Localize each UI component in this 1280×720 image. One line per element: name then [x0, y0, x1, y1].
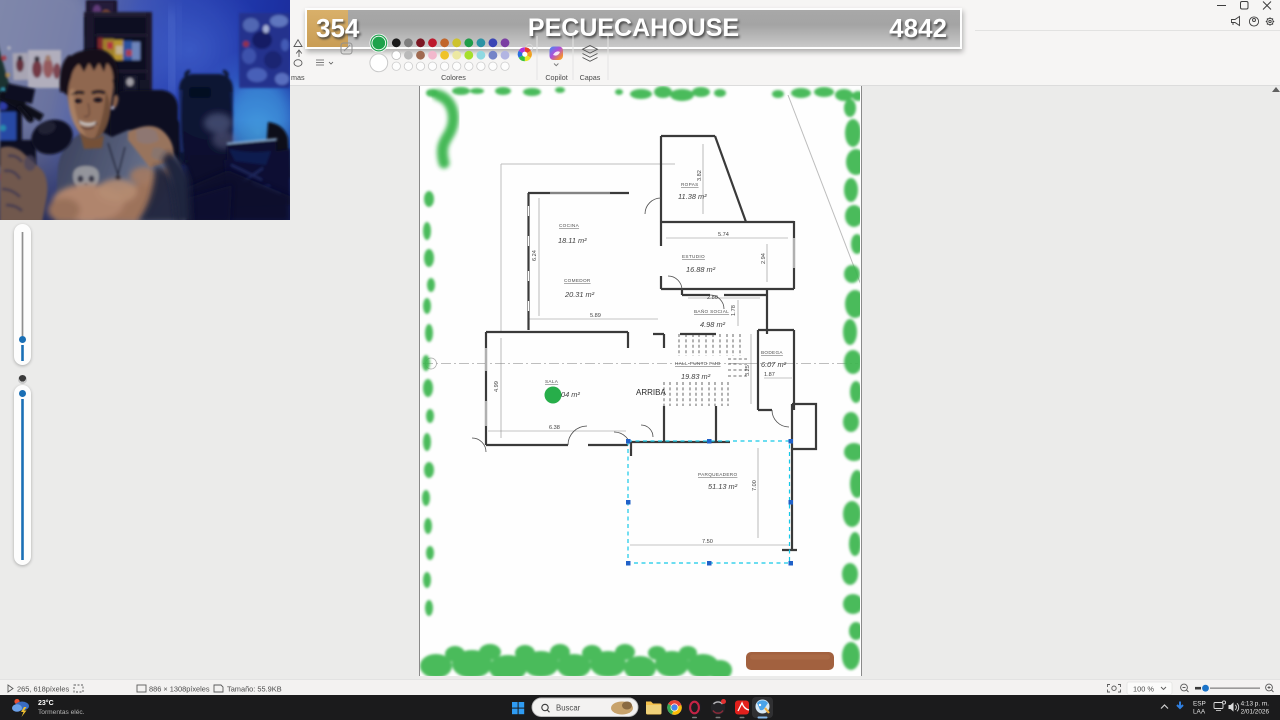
svg-text:Tamaño: 55.9KB: Tamaño: 55.9KB — [227, 685, 282, 694]
svg-text:5.74: 5.74 — [718, 232, 729, 238]
svg-text:2/01/2026: 2/01/2026 — [1241, 709, 1270, 716]
svg-text:100 %: 100 % — [1133, 685, 1154, 694]
svg-text:ARRIBA: ARRIBA — [636, 388, 666, 397]
svg-text:Tormentas eléc.: Tormentas eléc. — [38, 709, 85, 716]
svg-text:23°C: 23°C — [38, 699, 54, 707]
svg-text:ESTUDIO: ESTUDIO — [682, 254, 705, 259]
svg-text:COCINA: COCINA — [559, 223, 580, 228]
svg-text:19.83 m²: 19.83 m² — [681, 372, 711, 381]
svg-text:20.31 m²: 20.31 m² — [564, 290, 595, 299]
svg-text:2.94: 2.94 — [761, 253, 767, 264]
svg-text:6.07 m²: 6.07 m² — [761, 360, 787, 369]
svg-text:ESP: ESP — [1193, 701, 1206, 708]
svg-text:5.89: 5.89 — [590, 313, 601, 319]
svg-text:51.13 m²: 51.13 m² — [708, 482, 738, 491]
svg-text:1.87: 1.87 — [764, 372, 775, 378]
svg-text:3.25: 3.25 — [745, 365, 751, 376]
svg-text:COMEDOR: COMEDOR — [564, 278, 591, 283]
svg-text:Buscar: Buscar — [556, 704, 581, 713]
svg-text:3.82: 3.82 — [697, 170, 703, 181]
svg-text:6.24: 6.24 — [532, 250, 538, 261]
svg-text:SALA: SALA — [545, 379, 559, 384]
svg-text:PARQUEADERO: PARQUEADERO — [698, 472, 737, 477]
svg-text:265, 618píxeles: 265, 618píxeles — [17, 685, 69, 694]
svg-text:ROPAS: ROPAS — [681, 182, 699, 187]
svg-text:4.99: 4.99 — [494, 381, 500, 392]
svg-text:18.11 m²: 18.11 m² — [558, 236, 587, 245]
svg-text:11.38 m²: 11.38 m² — [678, 192, 707, 201]
svg-text:Copilot: Copilot — [545, 73, 567, 82]
svg-text:Capas: Capas — [580, 73, 601, 82]
svg-text:LAA: LAA — [1193, 709, 1206, 716]
svg-text:4:13 p. m.: 4:13 p. m. — [1241, 701, 1270, 708]
svg-text:1.78: 1.78 — [731, 305, 737, 316]
svg-text:4.98 m²: 4.98 m² — [700, 320, 726, 329]
svg-text:16.88 m²: 16.88 m² — [686, 265, 716, 274]
svg-text:6.38: 6.38 — [549, 425, 560, 431]
svg-text:BODEGA: BODEGA — [761, 350, 783, 355]
svg-text:2.80: 2.80 — [707, 295, 718, 301]
svg-text:mas: mas — [291, 73, 305, 82]
svg-text:7.00: 7.00 — [752, 480, 758, 491]
svg-text:HALL-PUNTO FIJO: HALL-PUNTO FIJO — [675, 361, 721, 366]
svg-text:886 × 1308píxeles: 886 × 1308píxeles — [149, 685, 210, 694]
svg-text:BAÑO SOCIAL: BAÑO SOCIAL — [694, 308, 729, 314]
svg-text:7.50: 7.50 — [702, 539, 713, 545]
svg-text:Colores: Colores — [441, 73, 466, 82]
svg-text:04 m²: 04 m² — [561, 390, 580, 399]
